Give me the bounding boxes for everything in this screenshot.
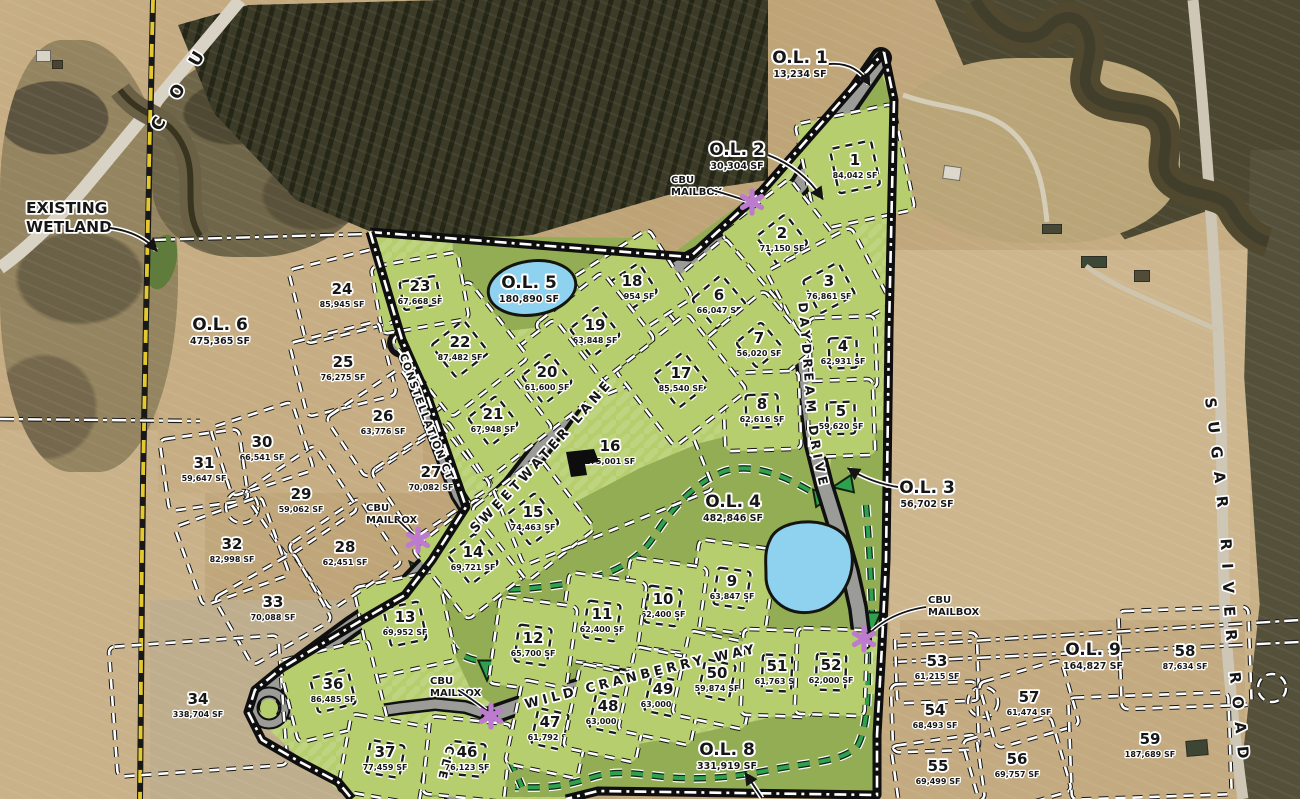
outlot-label-ol9: O.L. 9164,827 SF [1063,640,1123,672]
lot-area: 59,874 SF [695,684,740,693]
lot-area: 85,945 SF [320,300,365,309]
lot-area: 66,541 SF [240,453,285,462]
outlot-name: O.L. 5 [501,273,557,293]
lot-area: 69,721 SF [451,563,496,572]
lot-number: 53 [927,652,948,670]
lot-area: 87,482 SF [438,353,483,362]
lot-number: 55 [928,757,949,775]
lot-number: 24 [332,280,353,298]
outlot-area: 475,365 SF [190,336,250,347]
lot-number: 1 [850,151,860,169]
cbu-label: MAILBOX [366,515,418,526]
lot-number: 4 [838,337,848,355]
lot-number: 48 [598,697,619,715]
lot-number: 13 [395,608,416,626]
lot-area: 56,020 SF [737,349,782,358]
lot-area: 86,485 SF [311,695,356,704]
outlot-name: O.L. 1 [772,48,828,68]
outlot-name: O.L. 9 [1065,640,1121,660]
outlot-area: 482,846 SF [703,513,763,524]
lot-number: 7 [754,329,764,347]
wetland-label-line2: WETLAND [26,218,112,236]
cbu-mailbox-1: CBUMAILBOX [671,175,762,213]
lot-number: 57 [1019,688,1040,706]
lot-number: 34 [188,690,209,708]
lot-area: 62,616 SF [740,415,785,424]
lot-area: 67,668 SF [398,297,443,306]
outlot-area: 331,919 SF [697,761,757,772]
lot-number: 26 [373,407,394,425]
outlot-area: 30,304 SF [710,161,763,172]
lot-number: 20 [537,363,558,381]
lot-number: 17 [671,364,692,382]
lot-area: 69,952 SF [383,628,428,637]
plat-overlay: 184,042 SF271,150 SF376,861 SF462,931 SF… [0,0,1300,799]
lot-number: 14 [463,543,484,561]
cbu-label: CBU [366,503,389,514]
outlot-area: 56,702 SF [900,499,953,510]
lot-number: 47 [540,713,561,731]
wetland-label-line1: EXISTING [26,199,108,217]
outlot-name: O.L. 4 [705,492,761,512]
lot-number: 21 [483,405,504,423]
lot-area: 69,499 SF [916,777,961,786]
outlot-name: O.L. 3 [899,478,955,498]
lot-number: 2 [777,224,787,242]
lot-area: 338,704 SF [173,710,223,719]
lot-area: 71,150 SF [760,244,805,253]
lot-area: 67,948 SF [471,425,516,434]
lot-32: 3282,998 SF [174,496,289,606]
lot-number: 11 [592,605,613,623]
lot-number: 56 [1007,750,1028,768]
lot-number: 9 [727,572,737,590]
lot-31: 3159,647 SF [159,429,248,511]
lot-area: 187,689 SF [1125,750,1175,759]
lot-number: 23 [410,277,431,295]
lot-number: 5 [836,402,846,420]
lot-number: 31 [194,454,215,472]
cbu-label: CBU [928,595,951,606]
lot-53: 5361,215 SF [895,633,979,704]
lot-area: 70,088 SF [251,613,296,622]
lot-area: 62,000 SF [809,676,854,685]
lot-number: 32 [222,535,243,553]
lot-area: 59,620 SF [819,422,864,431]
lot-area: 77,459 SF [363,763,408,772]
cbu-mailbox-2: CBUMAILBOX [366,503,428,551]
cbu-label: MAILBOX [928,607,980,618]
outlot-label-ol6: O.L. 6475,365 SF [190,315,250,347]
lot-number: 36 [323,675,344,693]
road-label-county: C O U [147,40,214,134]
cbu-label: CBU [430,676,453,687]
lot-area: 61,600 SF [525,383,570,392]
plat-map-screenshot: 184,042 SF271,150 SF376,861 SF462,931 SF… [0,0,1300,799]
lot-number: 19 [585,316,606,334]
lot-number: 16 [600,437,621,455]
lot-area: 82,998 SF [210,555,255,564]
lot-area: 65,700 SF [511,649,556,658]
lot-area: 63,847 SF [710,592,755,601]
lot-number: 12 [523,629,544,647]
outlot-area: 164,827 SF [1063,661,1123,672]
lot-number: 52 [821,656,842,674]
lot-number: 22 [450,333,471,351]
lot-number: 18 [622,272,643,290]
lot-number: 10 [653,590,674,608]
lot-area: 76,861 SF [807,292,852,301]
lot-area: 87,634 SF [1163,662,1208,671]
lot-number: 29 [291,485,312,503]
lot-area: 62,931 SF [821,357,866,366]
lot-number: 46 [457,743,478,761]
lot-area: 85,540 SF [659,384,704,393]
lot-area: 62,400 SF [641,610,686,619]
lot-number: 51 [767,657,788,675]
lot-area: 69,757 SF [995,770,1040,779]
lot-area: 68,493 SF [913,721,958,730]
lot-number: 37 [375,743,396,761]
lot-number: 15 [523,503,544,521]
outlot-name: O.L. 2 [709,140,765,160]
lot-area: 61,763 SF [755,677,800,686]
existing-wetland-label: EXISTINGWETLAND [26,199,156,250]
lot-57: 5761,474 SF [978,659,1079,748]
lot-area: 59,062 SF [279,505,324,514]
lot-number: 25 [333,353,354,371]
lot-number: 6 [714,286,724,304]
lot-area: 62,400 SF [580,625,625,634]
lot-number: 58 [1175,642,1196,660]
lot-number: 8 [757,395,767,413]
lot-number: 59 [1140,730,1161,748]
outlot-name: O.L. 8 [699,740,755,760]
lot-area: 74,463 SF [511,523,556,532]
lot-number: 3 [824,272,834,290]
lot-37: 3777,459 SF [338,713,432,799]
outlot-label-ol4: O.L. 4482,846 SF [703,492,763,524]
lot-area: 63,848 SF [573,336,618,345]
outlot-name: O.L. 6 [192,315,248,335]
lot-area: 61,215 SF [915,672,960,681]
driveway [1086,266,1218,330]
outlot-label-ol5: O.L. 5180,890 SF [499,273,559,305]
farm-track [903,95,1047,222]
lot-number: 30 [252,433,273,451]
lot-area: 61,474 SF [1007,708,1052,717]
lot-area: 59,647 SF [182,474,227,483]
lot-area: 63,776 SF [361,427,406,436]
cbu-label: MAILBOX [430,688,482,699]
cbu-label: CBU [671,175,694,186]
outlot-area: 13,234 SF [773,69,826,80]
lot-area: 76,275 SF [321,373,366,382]
lot-area: 70,082 SF [409,483,454,492]
lot-area: 84,042 SF [833,171,878,180]
lot-area: 62,451 SF [323,558,368,567]
lot-46: 4676,123 SF [422,716,512,799]
lot-number: 33 [263,593,284,611]
outlot-area: 180,890 SF [499,294,559,305]
lot-number: 49 [653,680,674,698]
lot-number: 28 [335,538,356,556]
lot-number: 54 [925,701,946,719]
